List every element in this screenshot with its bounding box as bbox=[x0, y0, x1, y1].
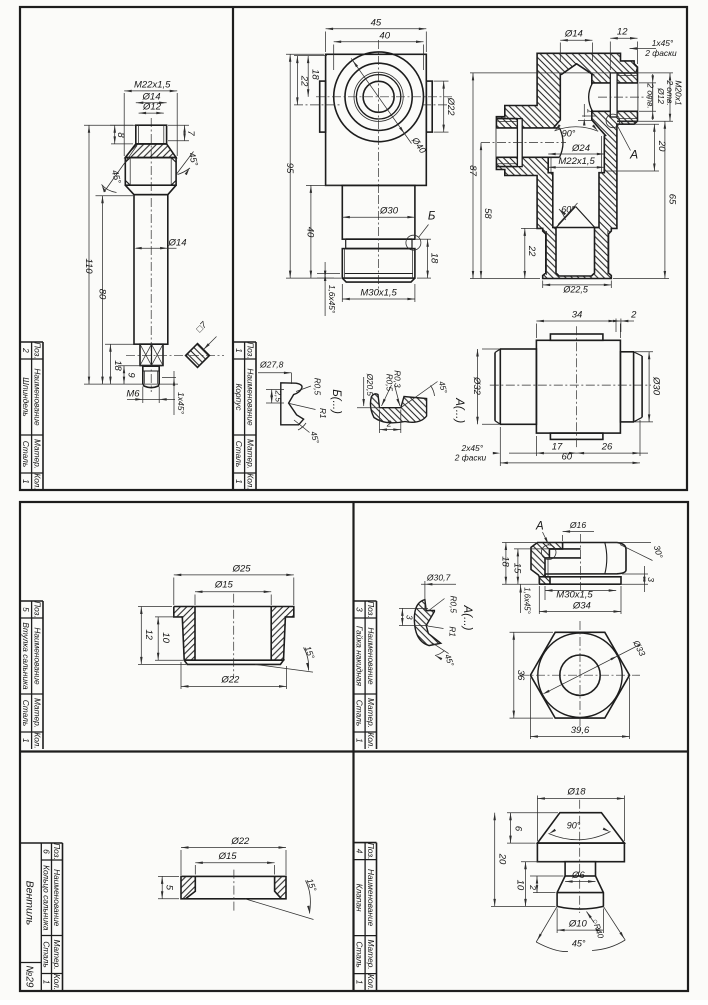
svg-text:15: 15 bbox=[511, 563, 522, 574]
svg-text:Вентиль: Вентиль bbox=[24, 881, 36, 926]
svg-text:1: 1 bbox=[234, 479, 244, 484]
svg-text:Ø30: Ø30 bbox=[651, 376, 662, 396]
svg-text:1: 1 bbox=[354, 980, 364, 985]
svg-text:9: 9 bbox=[126, 372, 137, 378]
svg-text:90°: 90° bbox=[562, 129, 576, 139]
svg-text:Ø25: Ø25 bbox=[232, 563, 252, 574]
svg-text:Ø20,5: Ø20,5 bbox=[365, 373, 374, 397]
svg-text:Наименование: Наименование bbox=[52, 869, 62, 927]
svg-text:18: 18 bbox=[310, 69, 321, 80]
svg-text:110: 110 bbox=[83, 258, 94, 274]
svg-text:Матер.: Матер. bbox=[52, 939, 62, 969]
svg-text:Кол.: Кол. bbox=[366, 974, 376, 990]
svg-text:Ø34: Ø34 bbox=[572, 600, 591, 611]
svg-text:1: 1 bbox=[21, 738, 31, 743]
svg-text:26: 26 bbox=[601, 442, 613, 453]
svg-text:95: 95 bbox=[284, 163, 295, 174]
svg-text:1,6x45°: 1,6x45° bbox=[522, 587, 531, 614]
svg-text:Ø12: Ø12 bbox=[142, 102, 162, 113]
svg-text:Ø14: Ø14 bbox=[564, 29, 583, 40]
svg-text:M22x1,5: M22x1,5 bbox=[558, 156, 595, 167]
svg-text:Наименование: Наименование bbox=[245, 368, 255, 426]
svg-text:Ø32: Ø32 bbox=[471, 376, 482, 396]
svg-text:Ø24: Ø24 bbox=[571, 143, 590, 154]
svg-text:R0,5: R0,5 bbox=[449, 596, 458, 614]
svg-text:А(...): А(...) bbox=[461, 605, 473, 631]
svg-text:Сталь: Сталь bbox=[21, 441, 31, 467]
svg-text:M22x1,5: M22x1,5 bbox=[134, 79, 171, 90]
svg-text:45: 45 bbox=[371, 18, 382, 29]
svg-text:6: 6 bbox=[512, 826, 523, 832]
svg-text:Ø10: Ø10 bbox=[568, 919, 588, 930]
svg-text:Сталь: Сталь bbox=[21, 700, 31, 726]
svg-text:3: 3 bbox=[354, 607, 364, 612]
svg-text:Ø16: Ø16 bbox=[569, 520, 586, 530]
svg-text:34: 34 bbox=[572, 310, 583, 321]
svg-text:Наименование: Наименование bbox=[32, 368, 42, 426]
svg-text:M6: M6 bbox=[126, 388, 140, 399]
svg-text:Матер.: Матер. bbox=[366, 698, 376, 728]
svg-text:3: 3 bbox=[405, 615, 414, 620]
svg-text:Матер.: Матер. bbox=[32, 698, 42, 728]
svg-text:Поз.: Поз. bbox=[245, 342, 255, 359]
svg-text:Клапан: Клапан bbox=[354, 884, 364, 912]
svg-text:Ø22: Ø22 bbox=[445, 97, 456, 117]
svg-text:4: 4 bbox=[354, 849, 364, 854]
svg-text:3: 3 bbox=[646, 577, 656, 582]
svg-text:1: 1 bbox=[41, 980, 51, 985]
svg-text:1: 1 bbox=[21, 479, 31, 484]
svg-text:Поз.: Поз. bbox=[32, 601, 42, 618]
svg-text:Поз.: Поз. bbox=[32, 342, 42, 359]
svg-text:10: 10 bbox=[160, 632, 171, 643]
svg-text:36: 36 bbox=[515, 670, 526, 681]
svg-text:40: 40 bbox=[379, 30, 390, 41]
svg-text:2,5: 2,5 bbox=[274, 390, 283, 403]
svg-text:Ø30,7: Ø30,7 bbox=[426, 572, 452, 582]
svg-text:Б: Б bbox=[428, 210, 436, 222]
svg-text:Гайка накидная: Гайка накидная bbox=[354, 626, 364, 687]
svg-text:R0,5: R0,5 bbox=[312, 378, 321, 396]
svg-text:Поз.: Поз. bbox=[52, 843, 62, 860]
svg-text:2: 2 bbox=[528, 884, 538, 890]
svg-text:Кол.: Кол. bbox=[52, 974, 62, 990]
svg-text:39,6: 39,6 bbox=[571, 725, 590, 736]
svg-text:1: 1 bbox=[354, 738, 364, 743]
svg-text:Ø22: Ø22 bbox=[220, 674, 240, 685]
svg-text:12: 12 bbox=[143, 629, 154, 640]
svg-text:1: 1 bbox=[586, 109, 596, 114]
svg-text:2x45°: 2x45° bbox=[461, 443, 484, 453]
svg-text:1x45°: 1x45° bbox=[176, 392, 186, 415]
svg-text:Поз.: Поз. bbox=[366, 601, 376, 618]
svg-text:Ø15: Ø15 bbox=[218, 851, 238, 862]
svg-text:А: А bbox=[535, 521, 544, 533]
svg-text:Матер.: Матер. bbox=[366, 940, 376, 970]
svg-text:Втулка сальника: Втулка сальника bbox=[21, 622, 31, 690]
svg-text:5: 5 bbox=[21, 607, 31, 612]
svg-text:2 фаски: 2 фаски bbox=[644, 48, 677, 58]
svg-text:Наименование: Наименование bbox=[366, 869, 376, 927]
svg-text:18: 18 bbox=[429, 253, 440, 264]
svg-text:Кольцо сальника: Кольцо сальника bbox=[41, 865, 51, 931]
svg-text:Ø18: Ø18 bbox=[567, 786, 587, 797]
svg-text:А: А bbox=[629, 148, 638, 162]
svg-text:2: 2 bbox=[630, 310, 637, 321]
svg-text:Б(...): Б(...) bbox=[330, 389, 342, 414]
svg-text:Кол.: Кол. bbox=[32, 732, 42, 748]
svg-text:№29: №29 bbox=[24, 966, 35, 988]
svg-text:А(...): А(...) bbox=[453, 397, 465, 423]
svg-text:7: 7 bbox=[185, 130, 196, 136]
svg-text:87: 87 bbox=[467, 165, 478, 176]
svg-text:Сталь: Сталь bbox=[234, 441, 244, 467]
svg-text:Сталь: Сталь bbox=[354, 941, 364, 967]
svg-text:Ø15: Ø15 bbox=[214, 580, 234, 591]
svg-text:Поз.: Поз. bbox=[366, 843, 376, 860]
svg-text:Ø6: Ø6 bbox=[571, 870, 585, 881]
svg-text:Кол.: Кол. bbox=[366, 732, 376, 748]
svg-text:Корпус: Корпус bbox=[234, 384, 244, 412]
svg-text:2 отв.: 2 отв. bbox=[645, 82, 655, 108]
svg-text:65: 65 bbox=[666, 194, 677, 205]
svg-text:Ø12: Ø12 bbox=[656, 87, 666, 104]
svg-text:2 фаски: 2 фаски bbox=[454, 452, 487, 462]
svg-text:5: 5 bbox=[164, 885, 175, 891]
svg-text:Матер.: Матер. bbox=[32, 439, 42, 469]
svg-text:6: 6 bbox=[41, 849, 51, 854]
svg-text:Ø22: Ø22 bbox=[230, 836, 250, 847]
svg-text:1x45°: 1x45° bbox=[652, 38, 674, 48]
svg-text:8: 8 bbox=[115, 132, 126, 138]
svg-text:1: 1 bbox=[234, 348, 244, 353]
svg-text:R0,5: R0,5 bbox=[384, 374, 393, 392]
svg-text:90°: 90° bbox=[567, 821, 581, 831]
svg-text:Кол.: Кол. bbox=[245, 473, 255, 489]
svg-text:2: 2 bbox=[21, 347, 31, 353]
svg-text:Сталь: Сталь bbox=[41, 941, 51, 967]
svg-text:Наименование: Наименование bbox=[32, 627, 42, 685]
svg-text:20: 20 bbox=[497, 853, 508, 865]
svg-text:10: 10 bbox=[515, 880, 526, 891]
svg-text:M30x1,5: M30x1,5 bbox=[360, 288, 397, 299]
svg-text:Сталь: Сталь bbox=[354, 700, 364, 726]
svg-text:18: 18 bbox=[499, 556, 510, 567]
svg-text:58: 58 bbox=[482, 208, 493, 219]
svg-text:22: 22 bbox=[526, 245, 537, 257]
svg-text:1,6x45°: 1,6x45° bbox=[327, 285, 337, 314]
svg-text:22: 22 bbox=[299, 75, 310, 87]
svg-text:Ø27,8: Ø27,8 bbox=[259, 360, 284, 370]
svg-text:2: 2 bbox=[386, 419, 392, 429]
svg-text:R1: R1 bbox=[318, 408, 327, 418]
svg-text:Ø14: Ø14 bbox=[142, 91, 161, 102]
svg-text:60°: 60° bbox=[561, 205, 575, 215]
svg-text:12: 12 bbox=[617, 27, 628, 38]
svg-text:60: 60 bbox=[562, 452, 573, 463]
svg-text:45°: 45° bbox=[572, 939, 586, 949]
svg-text:M30x1,5: M30x1,5 bbox=[556, 590, 593, 601]
svg-text:Ø22,5: Ø22,5 bbox=[562, 284, 589, 294]
svg-text:Наименование: Наименование bbox=[366, 627, 376, 685]
svg-text:80: 80 bbox=[96, 289, 107, 300]
svg-text:R1: R1 bbox=[447, 626, 456, 636]
svg-text:Ø14: Ø14 bbox=[168, 238, 187, 249]
svg-text:Ø30: Ø30 bbox=[379, 206, 399, 217]
svg-text:40: 40 bbox=[304, 227, 315, 238]
svg-text:Кол.: Кол. bbox=[32, 473, 42, 489]
svg-text:Шпиндель: Шпиндель bbox=[21, 377, 31, 416]
svg-text:Матер.: Матер. bbox=[245, 439, 255, 469]
